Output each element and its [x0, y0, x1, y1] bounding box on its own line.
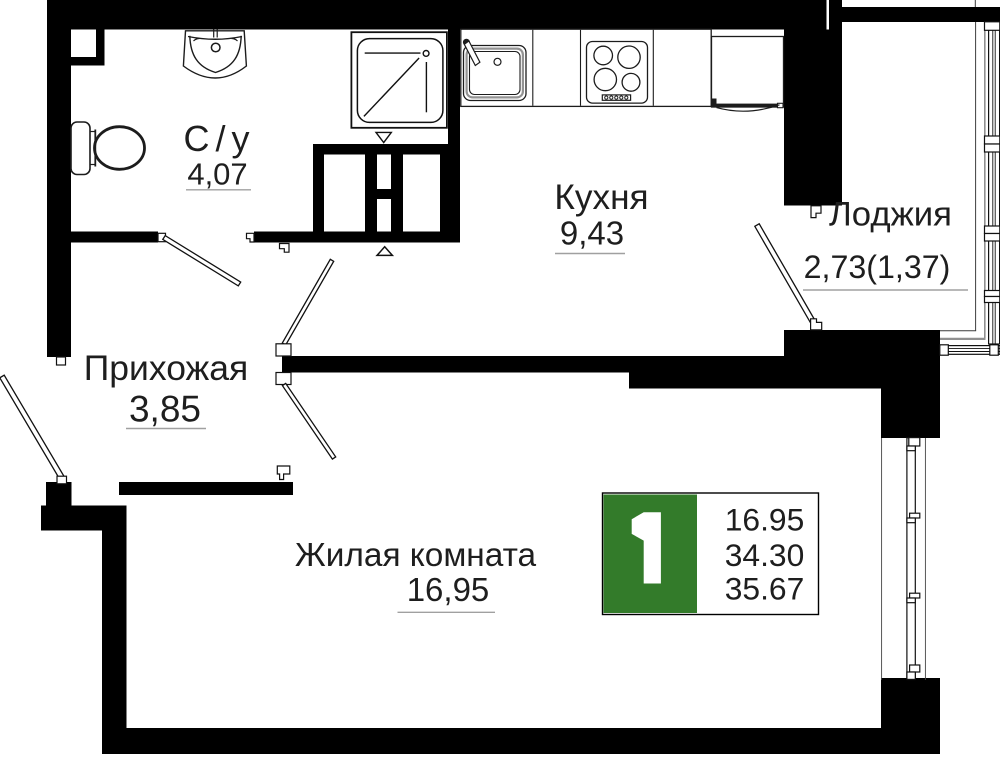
svg-text:16.95: 16.95 [725, 501, 805, 537]
svg-text:2,73(1,37): 2,73(1,37) [804, 249, 951, 285]
svg-text:Кухня: Кухня [554, 178, 648, 217]
svg-text:16,95: 16,95 [407, 571, 490, 608]
svg-text:Лоджия: Лоджия [829, 196, 952, 234]
svg-text:35.67: 35.67 [725, 571, 805, 607]
svg-text:9,43: 9,43 [560, 215, 624, 252]
svg-text:Прихожая: Прихожая [84, 348, 249, 388]
svg-text:Жилая комната: Жилая комната [295, 537, 537, 574]
svg-text:34.30: 34.30 [725, 537, 805, 573]
svg-text:3,85: 3,85 [129, 389, 201, 430]
svg-text:С/у: С/у [184, 118, 256, 159]
svg-text:4,07: 4,07 [187, 157, 247, 192]
